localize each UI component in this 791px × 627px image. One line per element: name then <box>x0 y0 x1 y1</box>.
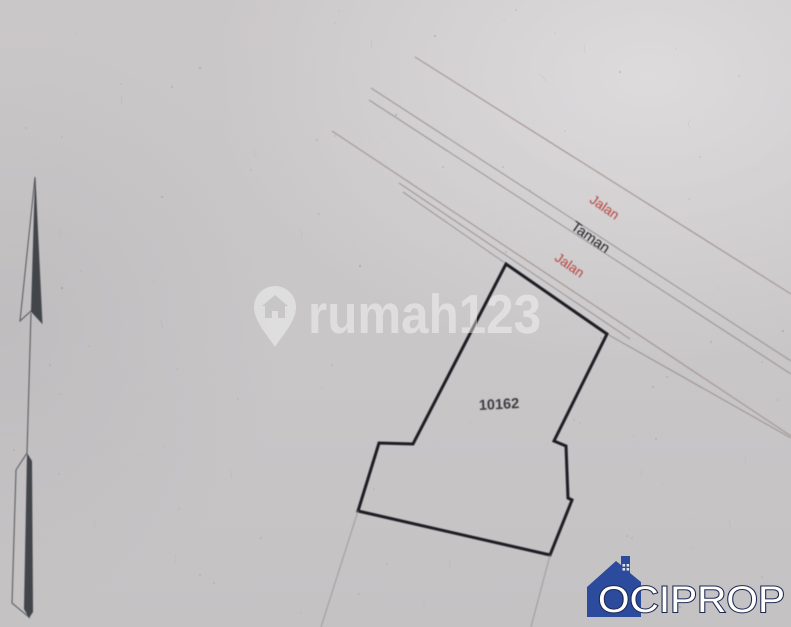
svg-text:Jalan: Jalan <box>587 192 622 223</box>
svg-text:Jalan: Jalan <box>552 250 587 281</box>
svg-text:Taman: Taman <box>568 219 613 257</box>
svg-text:10162: 10162 <box>478 396 519 414</box>
svg-text:OCIPROP: OCIPROP <box>598 579 785 620</box>
svg-text:rumah123: rumah123 <box>308 283 541 345</box>
